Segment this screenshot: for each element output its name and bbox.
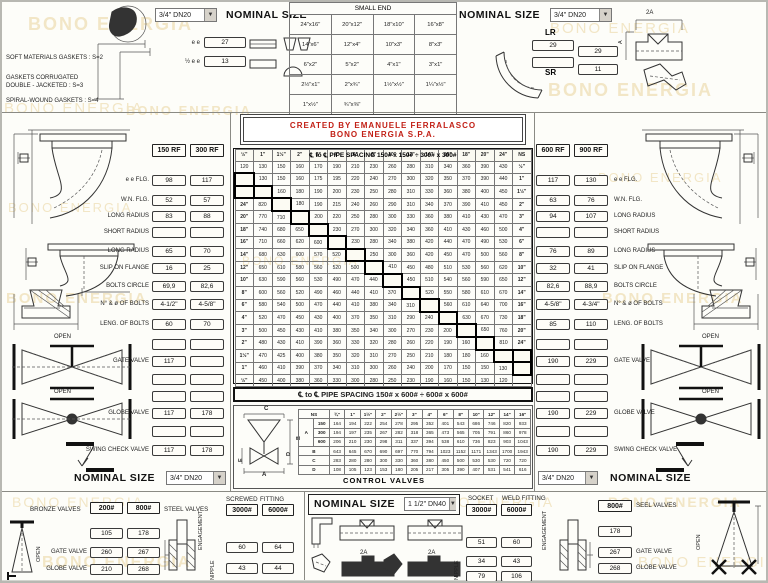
spacing-cell: 680: [272, 224, 291, 237]
cv-cell: 407: [468, 465, 483, 474]
nominal-size-value: 3/4" DN20: [156, 9, 204, 21]
small-end-cell: 4"x1": [373, 55, 415, 75]
spacing-cell: 360: [420, 211, 439, 224]
spacing-col-header: 18": [457, 150, 476, 162]
cv-cell: 298: [376, 437, 391, 446]
spacing-cell: 450: [402, 274, 421, 287]
spacing-cell: 650: [494, 274, 513, 287]
spacing-row-label-right: 6": [513, 236, 532, 249]
spacing-cell: [494, 350, 513, 363]
control-valves-panel: C B E A D NS¾"1"1½"2"2½"3"4"6"8"10"12"14…: [233, 405, 533, 489]
spacing-cell: 280: [383, 337, 402, 350]
small-end-cell: 20"x12": [331, 15, 373, 35]
steel800-value: 178: [598, 526, 632, 537]
spacing-cell: 150: [457, 375, 476, 387]
spacing-col-header: 1½": [272, 150, 291, 162]
panel-value: 4-5/8": [536, 299, 570, 310]
panel-value: [536, 227, 570, 238]
spacing-cell: 180: [291, 186, 310, 199]
spacing-cell: 410: [346, 299, 365, 312]
cv-cell: 197: [345, 428, 360, 437]
cv-cell: 791: [484, 428, 499, 437]
spacing-cell: 350: [346, 324, 365, 337]
spacing-col-header: 3": [309, 150, 328, 162]
nominal-size-select-topleft[interactable]: 3/4" DN20 ▼: [155, 8, 217, 22]
cv-cell: 108: [329, 465, 344, 474]
spacing-cell: 130: [494, 362, 513, 375]
panel-value: [190, 227, 224, 238]
cv-cell: 543: [453, 419, 468, 428]
spacing-cell: 600: [291, 249, 310, 262]
spacing-row-label-left: 10": [235, 274, 254, 287]
valve-value: [152, 426, 186, 437]
spacing-cell: 250: [365, 249, 384, 262]
spacing-cell: 340: [365, 324, 384, 337]
spacing-cell: 200: [439, 324, 458, 337]
spacing-cell: 300: [383, 324, 402, 337]
spacing-cell: 370: [383, 287, 402, 300]
spacing-cell: 450: [439, 249, 458, 262]
spacing-cell: 540: [439, 274, 458, 287]
spacing-cell: 280: [383, 186, 402, 199]
small-end-cell: 8"x3": [415, 35, 457, 55]
spacing-cell: 150: [476, 362, 495, 375]
cv-cell: 180: [391, 465, 406, 474]
cv-cell: 300: [376, 456, 391, 465]
cv-cell: 254: [376, 419, 391, 428]
spacing-cell: 250: [402, 350, 421, 363]
screwed-6000-header: 6000#: [262, 504, 294, 516]
spacing-cell: 650: [254, 261, 273, 274]
spacing-cell: 470: [254, 350, 273, 363]
chevron-down-icon[interactable]: ▼: [585, 472, 597, 484]
spacing-cell: 560: [457, 274, 476, 287]
dim-2a-label: 2A: [646, 10, 653, 16]
control-valve-drawing: [240, 412, 296, 478]
spacing-cell: 430: [309, 312, 328, 325]
valve-value: 178: [190, 445, 224, 456]
spacing-row-label-left: 16": [235, 236, 254, 249]
spacing-cell: 230: [328, 224, 347, 237]
cv-cell: 194: [345, 419, 360, 428]
cv-cell: 1023: [438, 447, 453, 456]
spacing-cell: 400: [291, 350, 310, 363]
spacing-cell: 570: [309, 249, 328, 262]
spacing-row-label-right: 2": [513, 198, 532, 211]
nominal-size-select-rightvalves[interactable]: 3/4" DN20 ▼: [538, 471, 598, 485]
panel-value: [574, 227, 608, 238]
cv-cell: 746: [484, 419, 499, 428]
spacing-cell: [291, 211, 310, 224]
nominal-size-select-leftvalves[interactable]: 3/4" DN20 ▼: [166, 471, 226, 485]
spacing-cell: 160: [439, 375, 458, 387]
spacing-cell: 430: [476, 211, 495, 224]
spacing-cell: 200: [328, 186, 347, 199]
cv-cell: 194: [329, 428, 344, 437]
panel-value: 41: [574, 263, 608, 274]
valve-value: 117: [152, 445, 186, 456]
spacing-cell: 430: [272, 337, 291, 350]
spacing-cell: 220: [346, 173, 365, 186]
spacing-cell: 600: [254, 287, 273, 300]
cv-cell: 105: [345, 465, 360, 474]
spacing-cell: 340: [402, 224, 421, 237]
nominal-size-label-topright: NOMINAL SIZE: [459, 9, 540, 21]
steel800-value: 268: [598, 563, 632, 574]
small-end-cell: 12"x4": [331, 35, 373, 55]
engagement-label-left: ENGAGEMENT: [198, 511, 204, 550]
spacing-cell: [420, 299, 439, 312]
reference-sheet: BONO ENERGIABONO ENERGIABONO ENERGIABONO…: [0, 0, 768, 583]
screwed-tee-drawing-2: [406, 518, 464, 548]
spacing-cell: 500: [291, 299, 310, 312]
globe-valve-drawing-left: [10, 397, 135, 441]
sr-value-empty: [532, 57, 574, 68]
spacing-cell: 360: [309, 375, 328, 387]
spacing-cell: 390: [476, 161, 495, 173]
valve-row-label: SWING CHECK VALVE: [614, 447, 677, 453]
spacing-row-label-right: 24": [513, 337, 532, 350]
cv-cell: 318: [407, 428, 422, 437]
spacing-cell: 520: [328, 249, 347, 262]
spacing-cell: 240: [365, 173, 384, 186]
nominal-size-select-bottom[interactable]: 1 1/2" DN40 ▼: [404, 497, 456, 511]
screwed-value: 44: [262, 563, 294, 574]
spacing-cell: 130: [476, 375, 495, 387]
valve-row-label: GATE VALVE: [22, 358, 149, 364]
gasket-note-1: SOFT MATERIALS GASKETS : S=2: [6, 55, 103, 61]
spacing-cell: 730: [494, 312, 513, 325]
cv-cell: 206: [329, 437, 344, 446]
spacing-cell: [439, 312, 458, 325]
socket-value: 60: [501, 537, 532, 548]
spacing-cell: 340: [383, 236, 402, 249]
spacing-cell: 380: [402, 236, 421, 249]
spacing-cell: 440: [328, 299, 347, 312]
control-valves-title: CONTROL VALVES: [234, 476, 534, 485]
spacing-cell: 160: [476, 350, 495, 363]
swing-check-drawing-left: [60, 440, 120, 474]
cv-cell: 670: [360, 447, 375, 456]
spacing-cell: 630: [457, 312, 476, 325]
open-label-right-gate: OPEN: [702, 334, 719, 340]
spacing-cell: 420: [420, 236, 439, 249]
spacing-cell: 190: [309, 198, 328, 211]
tee-drawing: [624, 20, 684, 68]
spacing-cell: 380: [309, 350, 328, 363]
spacing-cell: 330: [346, 337, 365, 350]
cv-cell: 645: [345, 447, 360, 456]
spacing-col-header: 6": [346, 150, 365, 162]
bottom-valve-value: 260: [90, 547, 123, 558]
spacing-col-header: ½": [235, 150, 254, 162]
tee-value: 29: [578, 46, 618, 57]
bronze-valves-label: BRONZE VALVES: [30, 506, 81, 513]
spacing-row-label-left: 2": [235, 337, 254, 350]
spacing-cell: 290: [383, 198, 402, 211]
panel-value: 69,9: [152, 281, 186, 292]
valve-value: [190, 374, 224, 385]
spacing-cell: 310: [402, 186, 421, 199]
spacing-cell: 440: [439, 236, 458, 249]
panel-value: 60: [152, 319, 186, 330]
spacing-cell: 530: [494, 236, 513, 249]
spacing-cell: 330: [420, 186, 439, 199]
spacing-cell: 470: [346, 274, 365, 287]
spacing-table-wrap: ½"1"1½"2"3"4"6"8"10"12"14"16"18"20"24"NS…: [233, 148, 533, 384]
spacing-cell: 320: [383, 224, 402, 237]
spacing-cell: 310: [383, 312, 402, 325]
spacing-cell: 380: [439, 211, 458, 224]
spacing-cell: 360: [420, 224, 439, 237]
spacing-cell: 470: [494, 211, 513, 224]
spacing-cell: 490: [309, 287, 328, 300]
spacing-row-label-left: 12": [235, 261, 254, 274]
spacing-cell: 520: [420, 287, 439, 300]
cv-cell: 690: [376, 447, 391, 456]
small-end-cell: 2"x¾": [331, 75, 373, 95]
spacing-col-header: 10": [383, 150, 402, 162]
socket-45elbow-drawing: [382, 554, 404, 583]
chevron-down-icon[interactable]: ▼: [204, 9, 216, 21]
spacing-cell: 510: [420, 274, 439, 287]
valve-value: [152, 374, 186, 385]
cv-cell: 705: [468, 428, 483, 437]
cv-cell: 616: [515, 465, 531, 474]
spacing-cell: 230: [346, 186, 365, 199]
cv-cell: 530: [484, 456, 499, 465]
panel-value: 32: [536, 263, 570, 274]
flanged-elbow-drawing-right: [630, 120, 760, 230]
cv-cell: 500: [453, 456, 468, 465]
spacing-cell: [365, 261, 384, 274]
cv-cell: 610: [453, 437, 468, 446]
cv-col-header: 2½": [391, 410, 406, 419]
spacing-cell: 590: [272, 274, 291, 287]
spacing-row-label-right: 4": [513, 224, 532, 237]
panel-value: 57: [190, 195, 224, 206]
cv-cell: 933: [515, 419, 531, 428]
spacing-cell: [457, 324, 476, 337]
spacing-col-header: 12": [402, 150, 421, 162]
panel-row-label: LENG. OF BOLTS: [22, 321, 149, 327]
spacing-cell: 700: [494, 299, 513, 312]
screwed-value: 64: [262, 542, 294, 553]
screwed-value: 60: [226, 542, 258, 553]
spacing-cell: [476, 337, 495, 350]
cv-row-label: C: [299, 456, 330, 465]
spacing-cell: 300: [383, 211, 402, 224]
spacing-row-label-left: 3": [235, 324, 254, 337]
open-label-right-bottom: OPEN: [696, 534, 702, 550]
valve-value: [536, 426, 570, 437]
cv-cell: 337: [407, 437, 422, 446]
socket-value: 43: [501, 556, 532, 567]
spacing-cell: 500: [346, 261, 365, 274]
valve-value: [152, 391, 186, 402]
cv-cell: 450: [438, 456, 453, 465]
spacing-row-label-left: 14": [235, 249, 254, 262]
spacing-cell: 610: [272, 261, 291, 274]
cv-row-label: B: [299, 447, 330, 456]
nominal-size-label-leftvalves: NOMINAL SIZE: [74, 472, 155, 484]
panel-row-label: e e FLG.: [22, 177, 149, 183]
panel-value: 52: [152, 195, 186, 206]
spacing-cell: 390: [457, 198, 476, 211]
spacing-cell: 380: [365, 299, 384, 312]
spacing-cell: [402, 287, 421, 300]
spacing-col-header: 24": [494, 150, 513, 162]
cv-cell: 283: [329, 456, 344, 465]
swing-check-drawing-right: [650, 440, 710, 474]
cv-cell: 401: [438, 419, 453, 428]
small-end-cell: [373, 95, 415, 115]
small-end-cell: 18"x10": [373, 15, 415, 35]
spacing-cell: 740: [254, 224, 273, 237]
chevron-down-icon[interactable]: ▼: [599, 9, 611, 21]
bottom-valve-value: 105: [90, 528, 123, 539]
valve-row-label: GLOBE VALVE: [614, 410, 655, 416]
small-end-panel: SMALL END 24"x16"20"x12"18"x10"16"x8"14"…: [289, 2, 457, 115]
small-end-cell: 2½"x1": [290, 75, 332, 95]
socket-label: SOCKET: [468, 495, 493, 502]
cv-cell: 282: [391, 428, 406, 437]
spacing-cell: 360: [328, 337, 347, 350]
spacing-col-header: 20": [476, 150, 495, 162]
spacing-cell: [254, 186, 273, 199]
spacing-cell: 450: [272, 324, 291, 337]
valve-value: [574, 426, 608, 437]
spacing-cell: 240: [346, 198, 365, 211]
spacing-cell: 270: [346, 224, 365, 237]
spacing-cell: 370: [346, 312, 365, 325]
spacing-cell: 560: [291, 274, 310, 287]
panel-value: 70: [190, 246, 224, 257]
spacing-cell: 190: [439, 337, 458, 350]
spacing-cell: 160: [457, 337, 476, 350]
bottom-valve-value: 267: [127, 547, 160, 558]
dim-value-ee: 27: [204, 37, 246, 48]
spacing-cell: 450: [402, 261, 421, 274]
sr-label: SR: [545, 68, 556, 77]
spacing-cell: 520: [254, 312, 273, 325]
cv-cell: 235: [360, 428, 375, 437]
cv-col-header: 1": [345, 410, 360, 419]
cv-col-header: 14": [499, 410, 514, 419]
spacing-cell: 400: [272, 375, 291, 387]
socket-value: 79: [466, 571, 497, 582]
cv-cell: 267: [376, 428, 391, 437]
spacing-cell: 380: [457, 186, 476, 199]
spacing-row-label-left: 18": [235, 224, 254, 237]
spacing-cell: 310: [346, 362, 365, 375]
spacing-cell: 610: [457, 299, 476, 312]
valve-value: [190, 339, 224, 350]
nominal-size-select-topright[interactable]: 3/4" DN20 ▼: [550, 8, 612, 22]
spacing-cell: 300: [365, 362, 384, 375]
panel-value: 76: [574, 195, 608, 206]
spacing-cell: 490: [328, 274, 347, 287]
valve-value: 190: [536, 408, 570, 419]
small-end-cell: 16"x8": [415, 15, 457, 35]
spacing-cell: 215: [328, 198, 347, 211]
spacing-cell: 300: [346, 375, 365, 387]
steel800-label: GATE VALVE: [636, 549, 672, 555]
bronze-200-header: 200#: [90, 502, 123, 514]
spacing-cell: 580: [254, 299, 273, 312]
bottom-valve-value: 210: [90, 564, 123, 575]
chevron-down-icon[interactable]: ▼: [449, 498, 456, 510]
cv-cell: 330: [391, 456, 406, 465]
socket-value: 34: [466, 556, 497, 567]
spacing-cell: 320: [420, 173, 439, 186]
spacing-cell: 560: [476, 261, 495, 274]
cv-ns-header: NS: [299, 410, 330, 419]
cv-cell: 823: [484, 437, 499, 446]
spacing-cell: 160: [272, 186, 291, 199]
cv-cell: 770: [407, 447, 422, 456]
spacing-cell: 360: [402, 249, 421, 262]
spacing-cell: [235, 186, 254, 199]
small-end-cell: 1¼"x½": [415, 75, 457, 95]
spacing-cell: 620: [494, 261, 513, 274]
panel-value: 117: [536, 175, 570, 186]
spacing-cell: 200: [309, 211, 328, 224]
cv-cell: 217: [422, 465, 437, 474]
dim-value-half-ee: 13: [204, 56, 246, 67]
spacing-cell: 820: [254, 198, 273, 211]
spacing-row-label-right: 12": [513, 274, 532, 287]
valve-value: [574, 374, 608, 385]
engagement-label-mid: ENGAGEMENT: [542, 511, 548, 550]
valve-value: [574, 391, 608, 402]
spacing-cell: 580: [291, 261, 310, 274]
spacing-cell: 480: [254, 337, 273, 350]
panel-value: 83: [152, 211, 186, 222]
engagement-drawing-right: [554, 520, 594, 578]
nominal-size-value: 3/4" DN20: [167, 472, 213, 484]
panel-value: 110: [574, 319, 608, 330]
small-end-cell: 14"x6": [290, 35, 332, 55]
valve-value: [536, 391, 570, 402]
credit-box: CREATED BY EMANUELE FERRALASCO BONO ENER…: [240, 114, 526, 145]
spacing-cell: 130: [254, 173, 273, 186]
steel800-label: GLOBE VALVE: [636, 565, 677, 571]
cv-col-header: 3": [407, 410, 422, 419]
cv-cell: 736: [468, 437, 483, 446]
nominal-size-value: 3/4" DN20: [539, 472, 585, 484]
spacing-cell: 320: [365, 337, 384, 350]
spacing-cell: [272, 198, 291, 211]
cv-col-header: 10": [468, 410, 483, 419]
small-end-cell: 3"x1": [415, 55, 457, 75]
chevron-down-icon[interactable]: ▼: [213, 472, 225, 484]
cv-cell: 1043: [515, 437, 531, 446]
spacing-cell: 300: [402, 173, 421, 186]
spacing-cell: 460: [476, 224, 495, 237]
socket-tee-drawing-2: [408, 556, 460, 582]
dim-label-half-ee: ½ e e: [164, 59, 200, 65]
spacing-row-label-left: 4": [235, 312, 254, 325]
spacing-cell: 470: [272, 312, 291, 325]
screwed-elbow-drawing: [308, 518, 336, 548]
panel-value: 107: [574, 211, 608, 222]
valve-row-label: SWING CHECK VALVE: [22, 447, 149, 453]
divider-center-right: [534, 112, 535, 491]
spacing-cell: 470: [457, 249, 476, 262]
spacing-cell: 610: [476, 287, 495, 300]
divider-bottom-mid: [304, 491, 305, 580]
